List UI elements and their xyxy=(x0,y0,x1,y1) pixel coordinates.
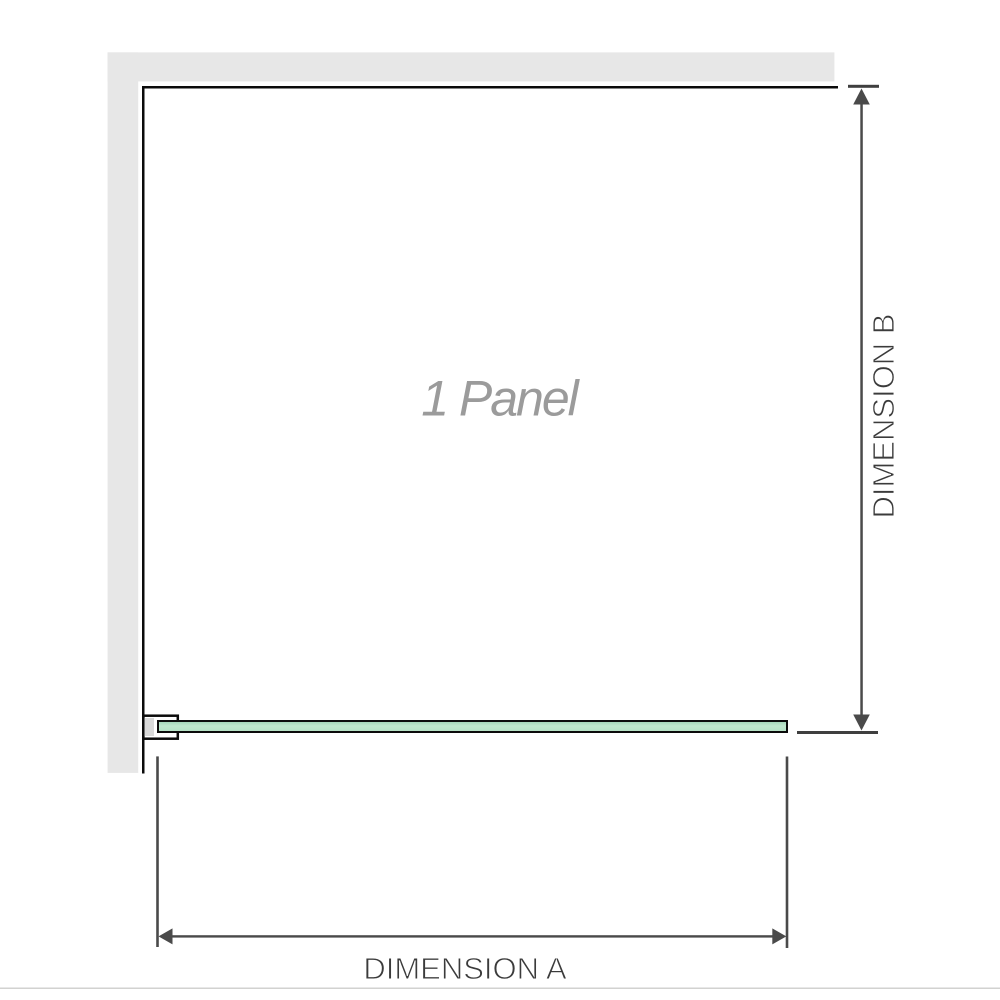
svg-text:DIMENSION A: DIMENSION A xyxy=(363,951,567,986)
svg-text:DIMENSION B: DIMENSION B xyxy=(866,314,901,519)
svg-text:1 Panel: 1 Panel xyxy=(421,371,580,427)
